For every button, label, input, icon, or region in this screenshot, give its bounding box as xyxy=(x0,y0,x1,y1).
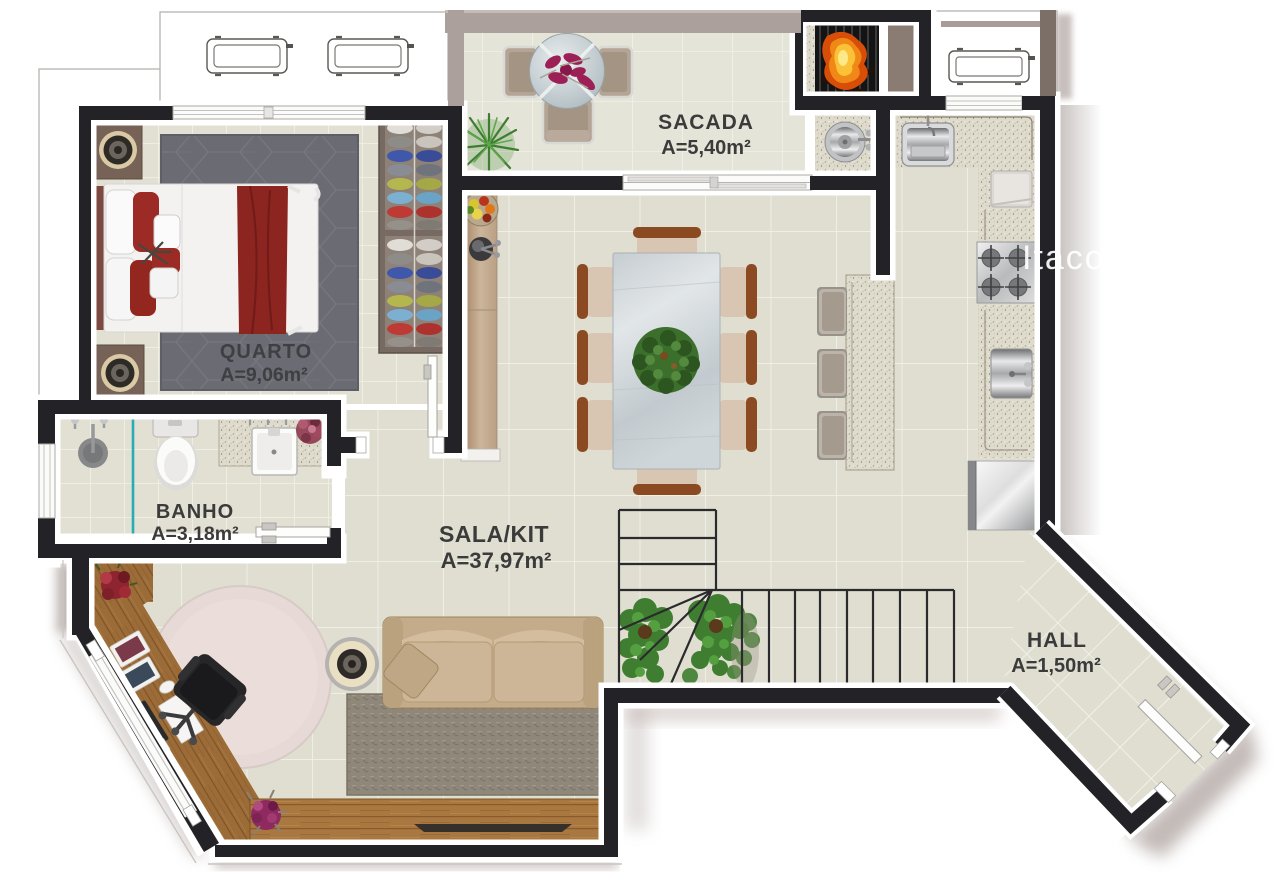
svg-text:A=3,18m²: A=3,18m² xyxy=(151,523,239,545)
svg-text:QUARTO: QUARTO xyxy=(220,341,312,363)
svg-text:HALL: HALL xyxy=(1027,629,1087,652)
svg-text:SACADA: SACADA xyxy=(658,111,754,134)
svg-text:A=1,50m²: A=1,50m² xyxy=(1011,655,1101,677)
svg-text:SALA/KIT: SALA/KIT xyxy=(439,521,549,547)
svg-text:Itacorubi: Itacorubi xyxy=(1022,239,1170,277)
svg-text:A=5,40m²: A=5,40m² xyxy=(661,137,751,159)
svg-text:A=37,97m²: A=37,97m² xyxy=(441,548,552,573)
svg-text:BANHO: BANHO xyxy=(156,501,234,523)
svg-text:A=9,06m²: A=9,06m² xyxy=(220,364,308,386)
